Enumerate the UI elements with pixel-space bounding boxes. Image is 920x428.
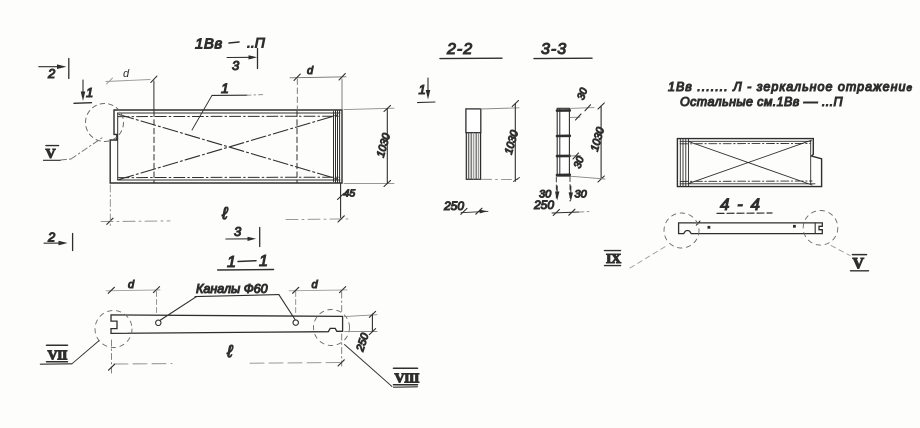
svg-text:1: 1 <box>86 85 93 100</box>
svg-text:d: d <box>123 68 130 80</box>
svg-text:2-2: 2-2 <box>446 41 473 58</box>
svg-text:ℓ: ℓ <box>221 204 228 223</box>
svg-text:ℓ: ℓ <box>226 342 233 361</box>
svg-text:IX: IX <box>606 252 621 267</box>
svg-text:3: 3 <box>232 58 240 73</box>
svg-text:1: 1 <box>259 253 268 270</box>
svg-text:45: 45 <box>344 188 356 200</box>
svg-text:250: 250 <box>533 198 554 212</box>
svg-text:d: d <box>312 279 319 291</box>
svg-text:Каналы Ф60: Каналы Ф60 <box>196 282 268 296</box>
svg-text:2: 2 <box>47 66 56 81</box>
svg-text:1Вв: 1Вв <box>195 36 223 53</box>
svg-text:d: d <box>307 65 314 77</box>
svg-text:4 - 4: 4 - 4 <box>720 195 762 214</box>
svg-text:3: 3 <box>234 224 242 239</box>
svg-text:3-3: 3-3 <box>541 41 567 58</box>
svg-text:1Вв ....... Л - зеркальное отр: 1Вв ....... Л - зеркальное отражение <box>668 80 913 94</box>
svg-text:30: 30 <box>575 189 588 201</box>
svg-text:1: 1 <box>221 80 229 96</box>
svg-text:1: 1 <box>419 82 426 97</box>
svg-text:d: d <box>128 279 135 291</box>
svg-text:1: 1 <box>227 254 236 271</box>
svg-text:V: V <box>853 256 865 273</box>
svg-text:250: 250 <box>443 199 464 213</box>
svg-text:Остальные см.1Вв — ...П: Остальные см.1Вв — ...П <box>680 93 843 109</box>
svg-text:2: 2 <box>47 230 56 245</box>
svg-text:..П: ..П <box>247 35 266 51</box>
